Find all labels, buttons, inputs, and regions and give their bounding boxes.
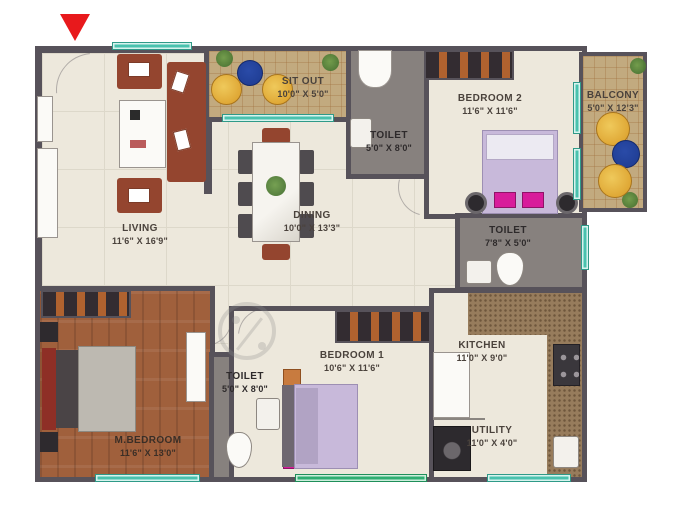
- room-dims: 11'6" X 13'0": [115, 448, 182, 459]
- room-dims: 7'8" X 5'0": [485, 238, 531, 249]
- bed-master: [78, 346, 136, 432]
- room-dims: 11'0" X 9'0": [457, 353, 508, 364]
- entrance-marker-icon: [60, 14, 90, 41]
- room-dims: 11'6" X 11'6": [458, 106, 522, 117]
- room-dims: 5'0" X 8'0": [366, 143, 412, 154]
- room-label-utility: UTILITY 11'0" X 4'0": [467, 425, 518, 449]
- mbed-headboard: [42, 348, 56, 430]
- room-dims: 10'0" X 5'0": [277, 89, 328, 100]
- room-name: M.BEDROOM: [115, 435, 182, 448]
- room-label-master-bedroom: M.BEDROOM 11'6" X 13'0": [115, 435, 182, 459]
- room-label-living: LIVING 11'6" X 16'9": [112, 223, 168, 247]
- centerpiece-plant-icon: [266, 176, 286, 196]
- window-strip: [222, 114, 334, 122]
- window-strip: [581, 225, 589, 270]
- room-label-toilet2: TOILET 7'8" X 5'0": [485, 225, 531, 249]
- room-dims: 11'0" X 4'0": [467, 438, 518, 449]
- room-label-dining: DINING 10'0" X 13'3": [284, 210, 340, 234]
- dining-chair: [238, 214, 253, 238]
- corner-unit: [40, 432, 58, 452]
- bathroom-sink-icon: [256, 398, 280, 430]
- plant-icon: [322, 54, 339, 71]
- window-strip: [112, 42, 192, 50]
- room-label-bedroom1: BEDROOM 1 10'6" X 11'6": [320, 350, 384, 374]
- plant-icon: [216, 50, 233, 67]
- room-label-bedroom2: BEDROOM 2 11'6" X 11'6": [458, 93, 522, 117]
- room-dims: 10'0" X 13'3": [284, 223, 340, 234]
- room-name: TOILET: [366, 130, 412, 143]
- bed-sheet: [486, 134, 554, 160]
- bed-pillow: [494, 192, 516, 208]
- bed-blanket: [296, 388, 318, 464]
- watermark-logo: [218, 302, 276, 360]
- room-name: BALCONY: [587, 90, 639, 103]
- room-dims: 5'0" X 8'0": [222, 384, 268, 395]
- dining-chair: [238, 150, 253, 174]
- room-name: TOILET: [485, 225, 531, 238]
- window-strip: [573, 148, 581, 200]
- tv-unit: [37, 148, 58, 238]
- kitchen-utility-divider: [433, 418, 485, 420]
- balcony-chair: [598, 164, 632, 198]
- armchair-cushion: [128, 62, 150, 77]
- nightstand: [465, 192, 487, 214]
- dining-chair: [238, 182, 253, 206]
- room-label-sitout: SIT OUT 10'0" X 5'0": [277, 76, 328, 100]
- room-label-toilet3: TOILET 5'0" X 8'0": [222, 371, 268, 395]
- kitchen-sink-icon: [553, 436, 579, 468]
- mbed-pillows: [56, 350, 78, 428]
- patio-table: [237, 60, 263, 86]
- window-strip: [573, 82, 581, 134]
- wardrobe-bedroom2: [424, 50, 514, 80]
- room-name: SIT OUT: [277, 76, 328, 89]
- dining-chair: [299, 150, 314, 174]
- dining-chair-head: [262, 244, 290, 260]
- window-strip: [95, 474, 200, 482]
- coffee-table: [119, 100, 166, 168]
- armchair-cushion: [128, 188, 150, 203]
- room-label-balcony: BALCONY 5'0" X 12'3": [587, 90, 639, 114]
- dining-chair: [299, 182, 314, 206]
- room-name: BEDROOM 2: [458, 93, 522, 106]
- shower-icon: [358, 50, 392, 88]
- room-name: UTILITY: [467, 425, 518, 438]
- room-name: BEDROOM 1: [320, 350, 384, 363]
- room-label-toilet-top: TOILET 5'0" X 8'0": [366, 130, 412, 154]
- table-decor: [130, 110, 140, 120]
- foyer-cabinet: [37, 96, 53, 142]
- watermark-dot: [232, 316, 240, 324]
- room-name: DINING: [284, 210, 340, 223]
- corner-unit: [40, 322, 58, 342]
- floor-plan-image: LIVING 11'6" X 16'9" SIT OUT 10'0" X 5'0…: [0, 0, 685, 513]
- room-label-kitchen: KITCHEN 11'0" X 9'0": [457, 340, 508, 364]
- bed1-headboard: [282, 385, 294, 467]
- wardrobe-bedroom1: [335, 310, 431, 343]
- room-name: LIVING: [112, 223, 168, 236]
- bathroom-sink-icon: [466, 260, 492, 284]
- watermark-dot: [258, 342, 266, 350]
- table-decor: [130, 140, 146, 148]
- washing-machine-icon: [433, 426, 471, 471]
- room-dims: 5'0" X 12'3": [587, 103, 639, 114]
- wardrobe-master: [41, 290, 131, 318]
- stove-icon: [553, 344, 580, 386]
- window-strip: [487, 474, 571, 482]
- room-dims: 10'6" X 11'6": [320, 363, 384, 374]
- window-strip: [295, 474, 427, 482]
- room-dims: 11'6" X 16'9": [112, 236, 168, 247]
- bed-pillow: [522, 192, 544, 208]
- plant-icon: [630, 58, 646, 74]
- room-name: TOILET: [222, 371, 268, 384]
- room-name: KITCHEN: [457, 340, 508, 353]
